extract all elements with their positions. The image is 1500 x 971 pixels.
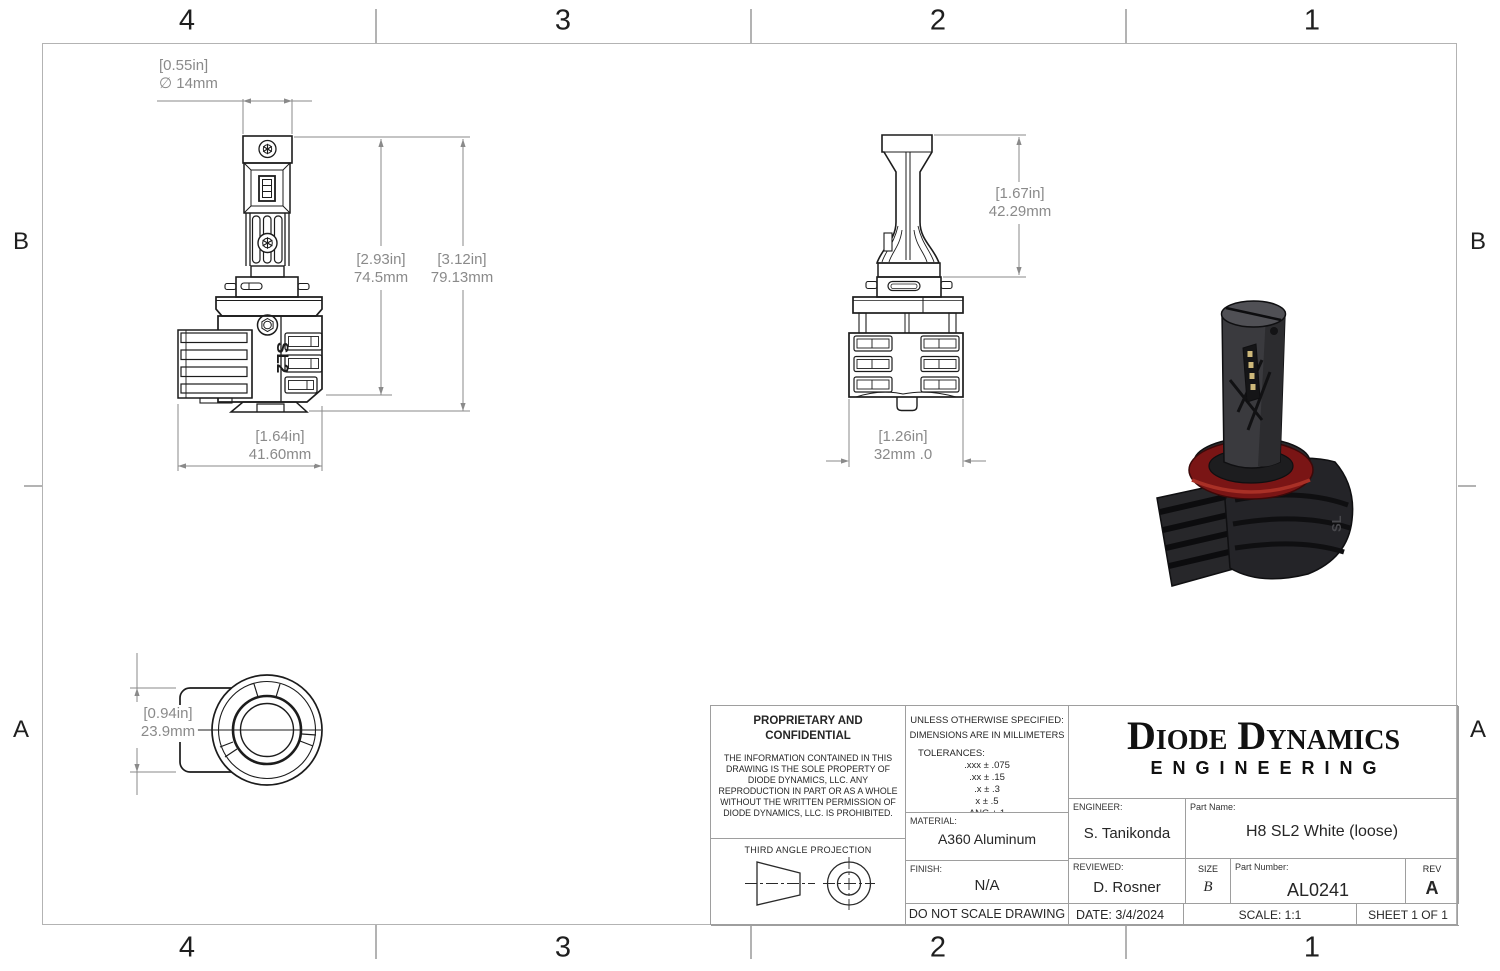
do-not-scale-text: DO NOT SCALE DRAWING xyxy=(906,907,1068,921)
material-value: A360 Aluminum xyxy=(906,831,1068,847)
reviewed-label: REVIEWED: xyxy=(1073,862,1124,872)
dimension-total-height: [3.12in] 79.13mm xyxy=(428,251,497,288)
proprietary-cell: PROPRIETARY AND CONFIDENTIAL THE INFORMA… xyxy=(711,706,906,839)
dimension-body-width: [1.64in] 41.60mm xyxy=(246,428,315,465)
dimension-side-width: [1.26in] 32mm .0 xyxy=(871,428,935,465)
third-angle-label: THIRD ANGLE PROJECTION xyxy=(711,845,905,855)
material-cell: MATERIAL: A360 Aluminum xyxy=(906,813,1069,861)
part-name-label: Part Name: xyxy=(1190,802,1236,812)
scale-cell: SCALE: 1:1 xyxy=(1184,904,1357,926)
proprietary-title: PROPRIETARY AND CONFIDENTIAL xyxy=(752,714,864,744)
proprietary-body: THE INFORMATION CONTAINED IN THIS DRAWIN… xyxy=(717,753,899,819)
part-name-value: H8 SL2 White (loose) xyxy=(1186,823,1458,841)
rev-label: REV xyxy=(1406,864,1458,874)
tolerance-item: .xxx ± .075 xyxy=(906,760,1068,771)
part-number-cell: Part Number: AL0241 xyxy=(1231,859,1406,904)
front-view-dimensions xyxy=(157,98,470,471)
material-label: MATERIAL: xyxy=(910,816,957,826)
reviewed-cell: REVIEWED: D. Rosner xyxy=(1069,859,1186,904)
third-angle-cell: THIRD ANGLE PROJECTION xyxy=(711,839,906,926)
tolerance-header-2: DIMENSIONS ARE IN MILLIMETERS xyxy=(906,730,1068,740)
dimension-base-height: [0.94in] 23.9mm xyxy=(138,705,198,742)
rev-cell: REV A xyxy=(1406,859,1459,904)
iso-heatsink-logo: SL xyxy=(1329,515,1344,532)
sheet-cell: SHEET 1 OF 1 xyxy=(1357,904,1459,926)
tolerance-item: .xx ± .15 xyxy=(906,772,1068,783)
reviewed-value: D. Rosner xyxy=(1069,879,1185,896)
title-block: PROPRIETARY AND CONFIDENTIAL THE INFORMA… xyxy=(710,705,1458,925)
tolerance-item: .x ± .3 xyxy=(906,784,1068,795)
isometric-view: SL xyxy=(1157,301,1353,586)
size-value: B xyxy=(1186,879,1230,896)
date-label: DATE: xyxy=(1076,908,1112,922)
company-logo: Diode Dynamics ENGINEERING xyxy=(1069,706,1459,799)
size-label: SIZE xyxy=(1186,864,1230,874)
rev-value: A xyxy=(1406,878,1458,899)
engineer-value: S. Tanikonda xyxy=(1069,825,1185,842)
part-name-cell: Part Name: H8 SL2 White (loose) xyxy=(1186,799,1459,859)
part-number-label: Part Number: xyxy=(1235,862,1289,872)
part-number-value: AL0241 xyxy=(1231,880,1405,901)
company-name: Diode Dynamics xyxy=(1069,716,1458,756)
dimension-side-height: [1.67in] 42.29mm xyxy=(986,185,1055,222)
dimension-cap-diameter: [0.55in] ∅ 14mm xyxy=(156,57,221,94)
engineer-label: ENGINEER: xyxy=(1073,802,1123,812)
side-view xyxy=(849,135,963,411)
size-cell: SIZE B xyxy=(1186,859,1231,904)
sheet-text: SHEET 1 OF 1 xyxy=(1357,908,1459,922)
finish-cell: FINISH: N/A xyxy=(906,861,1069,904)
finish-label: FINISH: xyxy=(910,864,942,874)
dimension-body-height: [2.93in] 74.5mm xyxy=(351,251,411,288)
company-division: ENGINEERING xyxy=(1069,758,1458,779)
bottom-view xyxy=(180,675,322,785)
engineer-cell: ENGINEER: S. Tanikonda xyxy=(1069,799,1186,859)
tolerance-item: x ± .5 xyxy=(906,796,1068,807)
date-value: 3/4/2024 xyxy=(1115,908,1164,922)
finish-value: N/A xyxy=(906,877,1068,894)
tolerance-header-1: UNLESS OTHERWISE SPECIFIED: xyxy=(906,715,1068,726)
scale-text: SCALE: 1:1 xyxy=(1184,908,1356,922)
front-view: SL2 xyxy=(178,136,322,412)
drawing-sheet: 4 3 2 1 4 3 2 1 B A B A xyxy=(0,0,1500,971)
do-not-scale-cell: DO NOT SCALE DRAWING xyxy=(906,904,1069,926)
tolerances-cell: UNLESS OTHERWISE SPECIFIED: DIMENSIONS A… xyxy=(906,706,1069,813)
date-cell: DATE: 3/4/2024 xyxy=(1069,904,1184,926)
tolerances-label: TOLERANCES: xyxy=(906,748,1068,759)
